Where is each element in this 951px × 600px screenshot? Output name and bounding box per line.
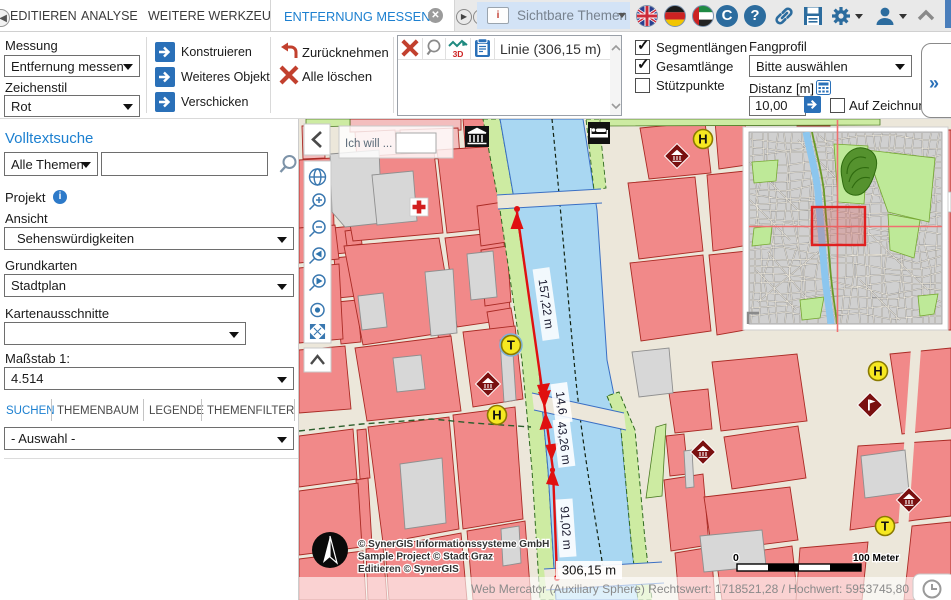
svg-text:Editieren © SynerGIS: Editieren © SynerGIS bbox=[358, 564, 459, 575]
svg-text:H: H bbox=[492, 408, 501, 423]
svg-text:T: T bbox=[507, 338, 515, 353]
svg-text:100 Meter: 100 Meter bbox=[853, 553, 899, 564]
svg-text:T: T bbox=[881, 519, 889, 534]
svg-text:3D: 3D bbox=[453, 49, 464, 59]
svg-text:Ich will ...: Ich will ... bbox=[345, 138, 392, 150]
svg-text:Sample Project © Stadt Graz: Sample Project © Stadt Graz bbox=[358, 552, 493, 563]
svg-text:0: 0 bbox=[733, 552, 739, 564]
svg-text:© SynerGIS Informationssysteme: © SynerGIS Informationssysteme GmbH bbox=[358, 539, 549, 550]
svg-text:H: H bbox=[873, 364, 882, 379]
svg-text:Web Mercator (Auxiliary Sphere: Web Mercator (Auxiliary Sphere) Rechtswe… bbox=[471, 582, 909, 596]
svg-text:H: H bbox=[698, 132, 707, 147]
svg-text:306,15 m: 306,15 m bbox=[562, 563, 616, 578]
